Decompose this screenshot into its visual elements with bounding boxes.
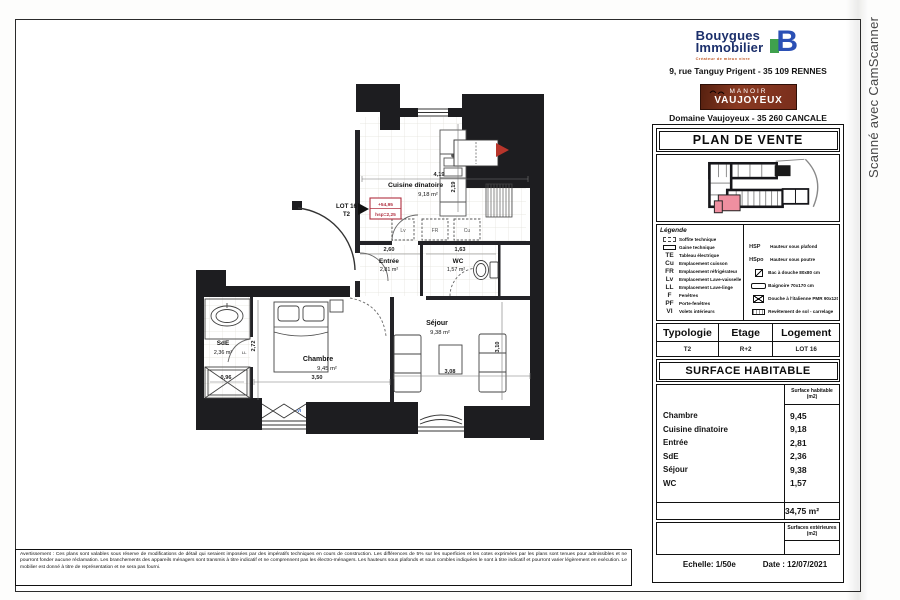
- dim-sejour-depth: 3,10: [495, 342, 501, 353]
- table-row: Chambre9,45: [657, 409, 839, 423]
- surface-column-header: Surface habitable (m2): [785, 385, 839, 405]
- legend-code: F: [660, 292, 679, 299]
- dim-wc-width: 1,63: [455, 247, 466, 253]
- room-surface: 9,45: [785, 411, 839, 421]
- legend-item: CuEmplacement cuisson: [660, 259, 742, 267]
- lot-number-label: LOT 16: [336, 203, 358, 210]
- room-label-sde: SdE: [217, 340, 230, 347]
- legend-box: Légende Soffite technique Gaine techniqu…: [656, 224, 840, 321]
- building-overview-box: [656, 154, 840, 222]
- developer-address: 9, rue Tanguy Prigent - 35 109 RENNES: [652, 66, 844, 76]
- lot-type-label: T2: [343, 212, 351, 218]
- bedroom-window-icon: [262, 402, 306, 430]
- legend-label: Emplacement Lave-linge: [679, 285, 733, 290]
- brand-line2: Immobilier: [696, 42, 764, 54]
- legend-item: HSPHauteur sous plafond: [749, 240, 838, 253]
- legend-code: LL: [660, 284, 679, 291]
- legend-item: Gaine technique: [660, 243, 742, 251]
- appliance-label-fr: FR: [432, 228, 439, 234]
- legend-code: Cu: [660, 260, 679, 267]
- legend-item: Revêtement de sol - carrelage: [749, 305, 838, 318]
- estate-name-line2: VAUJOYEUX: [701, 95, 796, 106]
- room-name: Entrée: [657, 438, 785, 447]
- room-area-sde: 2,36 m²: [214, 350, 232, 356]
- legend-label: Revêtement de sol - carrelage: [768, 309, 833, 314]
- room-name: WC: [657, 479, 785, 488]
- legend-label: Volets intérieurs: [679, 309, 715, 314]
- room-name: SdE: [657, 452, 785, 461]
- tiled-floor-hatch: [486, 184, 512, 217]
- doc-title: PLAN DE VENTE: [659, 131, 838, 150]
- brand-wordmark: Bouygues Immobilier Créateur de mieux vi…: [696, 30, 764, 61]
- unit-header-typologie: Typologie: [657, 324, 719, 341]
- exterior-column-header: Surfaces extérieures (m2): [785, 523, 839, 541]
- surface-rows: Chambre9,45 Cuisine dînatoire9,18 Entrée…: [657, 409, 839, 490]
- room-area-sejour: 9,38 m²: [430, 330, 450, 336]
- legend-item: FFenêtres: [660, 292, 742, 300]
- surface-title: SURFACE HABITABLE: [659, 362, 838, 380]
- legend-code: Lv: [660, 276, 679, 283]
- estate-logo: MANOIR VAUJOYEUX: [700, 84, 797, 110]
- unit-header-logement: Logement: [773, 324, 839, 341]
- surface-total-value: 34,75 m²: [785, 506, 831, 516]
- unit-value-etage: R+2: [719, 342, 774, 356]
- doc-title-box: PLAN DE VENTE: [656, 128, 840, 152]
- room-label-chambre: Chambre: [303, 356, 333, 363]
- dim-sejour-width: 3,08: [445, 369, 456, 375]
- room-surface: 9,38: [785, 465, 839, 475]
- legend-label: Fenêtres: [679, 293, 698, 298]
- surface-table: Surface habitable (m2) Chambre9,45 Cuisi…: [656, 384, 840, 520]
- room-label-wc: WC: [453, 258, 464, 265]
- legend-label: Emplacement Lave-vaisselle: [679, 277, 741, 282]
- room-label-cuisine: Cuisine dînatoire: [388, 182, 443, 189]
- room-area-wc: 1,57 m²: [447, 267, 465, 273]
- stamp-altitude: +54,95: [378, 202, 393, 208]
- legend-label: Porte-fenêtres: [679, 301, 710, 306]
- legend-label: Emplacement cuisson: [679, 261, 728, 266]
- brand-block: Bouygues Immobilier Créateur de mieux vi…: [652, 27, 844, 63]
- legend-code: TE: [660, 252, 679, 259]
- legend-label: Bac à douche 80x80 cm: [768, 270, 820, 275]
- legend-code: HSpo: [749, 257, 770, 263]
- room-label-sejour: Séjour: [426, 320, 448, 327]
- table-row: Cuisine dînatoire9,18: [657, 423, 839, 437]
- room-area-chambre: 9,45 m²: [317, 366, 337, 372]
- legend-item: Douche à l'italienne PMR 90x120 cm: [749, 292, 838, 305]
- legend-label: Baignoire 70x170 cm: [768, 283, 814, 288]
- stamp-hsp: hsp=2,25: [375, 212, 396, 218]
- exterior-surfaces-box: Surfaces extérieures (m2): [656, 522, 840, 555]
- brand-tagline: Créateur de mieux vivre: [696, 56, 764, 61]
- room-label-entree: Entrée: [379, 258, 399, 265]
- room-name: Chambre: [657, 411, 785, 420]
- logo-b-letter: B: [776, 26, 798, 58]
- legend-label: Douche à l'italienne PMR 90x120 cm: [768, 296, 838, 301]
- legend-label: Hauteur sous plafond: [770, 244, 817, 249]
- room-area-entree: 2,81 m²: [380, 267, 398, 273]
- dim-shower-width: 0,96: [221, 375, 232, 381]
- sofa-icons: [394, 334, 506, 392]
- legend-item: LLEmplacement Lave-linge: [660, 284, 742, 292]
- legend-label: Emplacement réfrigérateur: [679, 269, 737, 274]
- appliance-label-lv: Lv: [400, 228, 406, 234]
- legend-item: Bac à douche 80x80 cm: [749, 266, 838, 279]
- surface-total-row: 34,75 m²: [657, 502, 839, 519]
- exterior-header-line2: (m2): [785, 531, 839, 537]
- dim-chambre-depth: 2,72: [251, 341, 257, 352]
- bouygues-logo-icon: B: [770, 30, 800, 60]
- legend-item: Baignoire 70x170 cm: [749, 279, 838, 292]
- legend-item: PFPorte-fenêtres: [660, 300, 742, 308]
- altimetry-stamp: +54,95 hsp=2,25: [370, 198, 401, 219]
- table-row: WC1,57: [657, 477, 839, 491]
- bathtub-icon: [751, 283, 766, 289]
- legend-code: VI: [660, 308, 679, 315]
- dim-chambre-width: 3,50: [312, 375, 323, 381]
- room-name: Cuisine dînatoire: [657, 425, 785, 434]
- room-surface: 2,81: [785, 438, 839, 448]
- unit-value-logement: LOT 16: [773, 342, 839, 356]
- legend-item: VIVolets intérieurs: [660, 308, 742, 316]
- estate-address: Domaine Vaujoyeux - 35 260 CANCALE: [652, 113, 844, 123]
- legend-title: Légende: [660, 227, 839, 234]
- appliance-label-cu: Cu: [464, 228, 471, 234]
- building-key-plan: [657, 155, 839, 221]
- legend-label: Soffite technique: [679, 237, 716, 242]
- legend-item: FREmplacement réfrigérateur: [660, 267, 742, 275]
- vi-shutter-mark: VI: [297, 408, 301, 413]
- legend-item: TETableau électrique: [660, 251, 742, 259]
- surface-column-header-line2: (m2): [785, 394, 839, 400]
- room-surface: 2,36: [785, 451, 839, 461]
- table-row: Séjour9,38: [657, 463, 839, 477]
- legal-disclaimer: Avertissement : Ces plans sont valables …: [15, 549, 632, 586]
- livingroom-window-icon: [418, 406, 464, 434]
- soffit-icon: [663, 237, 676, 242]
- dim-entree-width: 2,60: [384, 247, 395, 253]
- room-name: Séjour: [657, 465, 785, 474]
- birds-icon: [709, 88, 731, 96]
- date-label: Date : 12/07/2021: [763, 560, 840, 569]
- legend-item: LvEmplacement Lave-vaisselle: [660, 275, 742, 283]
- shower-tray-icon: [755, 269, 763, 277]
- floor-plan-drawing: Lv FR Cu: [196, 84, 548, 465]
- legend-left-column: Soffite technique Gaine technique TETabl…: [660, 234, 744, 318]
- kitchen-window-icon: [418, 109, 448, 116]
- unit-summary-table: Typologie Etage Logement T2 R+2 LOT 16: [656, 323, 840, 357]
- legend-label: Tableau électrique: [679, 253, 719, 258]
- room-surface: 9,18: [785, 424, 839, 434]
- toilet-icon: [474, 261, 499, 280]
- dim-cuisine-width: 4,19: [434, 172, 445, 178]
- legend-item: HSpoHauteur sous poutre: [749, 253, 838, 266]
- ll-washer-mark: LL: [242, 350, 247, 355]
- surface-title-box: SURFACE HABITABLE: [656, 359, 840, 382]
- pmr-shower-icon: [753, 295, 764, 303]
- legend-right-column: HSPHauteur sous plafond HSpoHauteur sous…: [744, 234, 839, 318]
- scale-label: Echelle: 1/50e: [656, 560, 763, 569]
- camscanner-watermark: Scanné avec CamScanner: [866, 2, 881, 178]
- legend-code: FR: [660, 268, 679, 275]
- legend-item: Soffite technique: [660, 235, 742, 243]
- legend-code: PF: [660, 300, 679, 307]
- legend-label: Gaine technique: [679, 245, 715, 250]
- scanned-sale-plan-page: Lv FR Cu: [0, 0, 900, 600]
- unit-value-typologie: T2: [657, 342, 719, 356]
- legend-code: HSP: [749, 244, 770, 250]
- scan-edge-shadow: [846, 0, 868, 600]
- dim-cuisine-depth: 2,19: [451, 182, 457, 193]
- duct-icon: [663, 245, 676, 250]
- tiling-icon: [752, 309, 765, 315]
- unit-header-etage: Etage: [719, 324, 774, 341]
- table-row: Entrée2,81: [657, 436, 839, 450]
- title-block-panel: PLAN DE VENTE: [652, 124, 844, 583]
- panel-footer: Echelle: 1/50e Date : 12/07/2021: [656, 558, 840, 571]
- legend-label: Hauteur sous poutre: [770, 257, 815, 262]
- room-surface: 1,57: [785, 478, 839, 488]
- table-row: SdE2,36: [657, 450, 839, 464]
- room-area-cuisine: 9,18 m²: [418, 192, 438, 198]
- legend-divider: [743, 225, 744, 320]
